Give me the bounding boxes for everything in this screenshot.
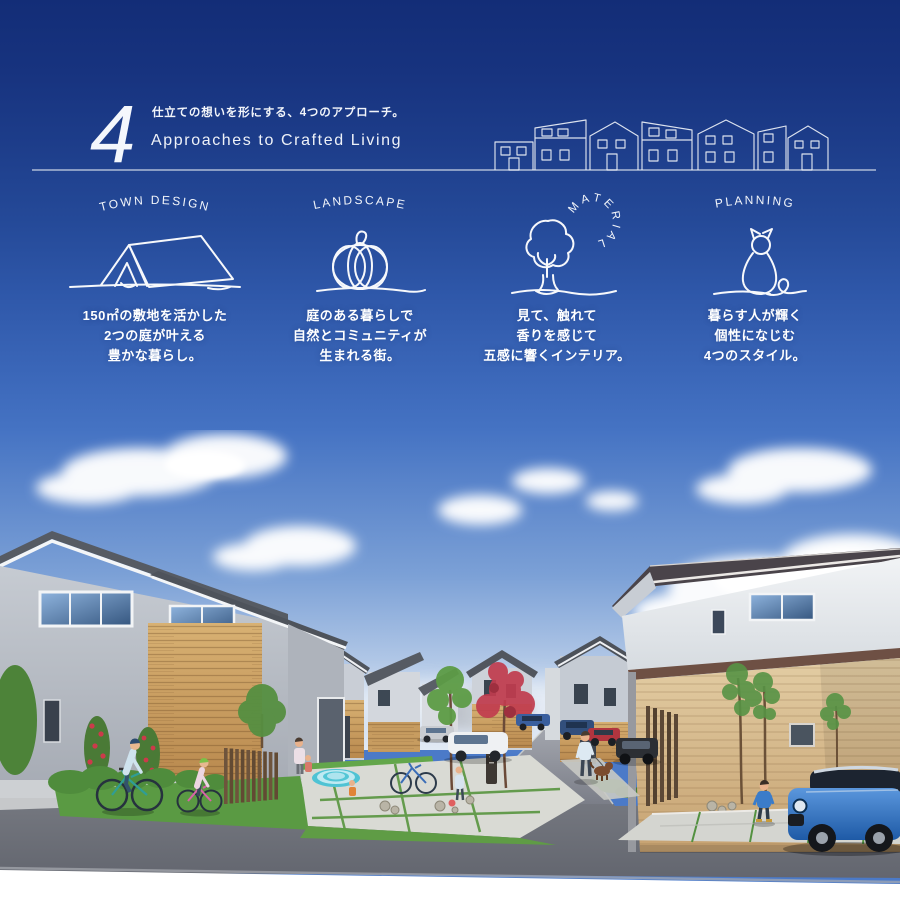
approach-label: LANDSCAPE (312, 193, 408, 212)
approach-landscape: LANDSCAPE 庭のある暮らしで 自然とコミュニティが 生まれる街。 (255, 186, 465, 366)
approach-material: MATERIAL 見て、触れて 香りを感じて 五感に響くインテリア。 (452, 186, 662, 366)
approach-town-design: TOWN DESIGN 150㎡の敷地を活かした 2つの庭が叶える 豊かな暮らし… (50, 186, 260, 366)
approach-description: 見て、触れて 香りを感じて 五感に響くインテリア。 (452, 306, 662, 366)
approach-badge: MATERIAL (452, 186, 662, 304)
approach-badge: LANDSCAPE (255, 186, 465, 304)
tree-icon (512, 220, 616, 294)
approach-description: 庭のある暮らしで 自然とコミュニティが 生まれる街。 (255, 306, 465, 366)
approach-badge: TOWN DESIGN (50, 186, 260, 304)
approach-label: MATERIAL (566, 192, 622, 251)
neighborhood-rendering (0, 430, 900, 900)
house-outlines (495, 120, 828, 170)
approach-description: 暮らす人が輝く 個性になじむ 4つのスタイル。 (650, 306, 860, 366)
approach-label: TOWN DESIGN (98, 193, 212, 214)
pumpkin-icon (317, 232, 425, 292)
approach-planning: PLANNING 暮らす人が輝く 個性になじむ 4つのスタイル。 (650, 186, 860, 366)
approach-badge: PLANNING (650, 186, 860, 304)
approach-description: 150㎡の敷地を活かした 2つの庭が叶える 豊かな暮らし。 (50, 306, 260, 366)
houses-row-illustration (30, 108, 880, 174)
approach-label: PLANNING (714, 193, 796, 211)
cat-icon (714, 229, 806, 295)
tent-icon (70, 236, 240, 289)
brochure-page: 4 仕立ての想いを形にする、4つのアプローチ。 Approaches to Cr… (0, 0, 900, 900)
